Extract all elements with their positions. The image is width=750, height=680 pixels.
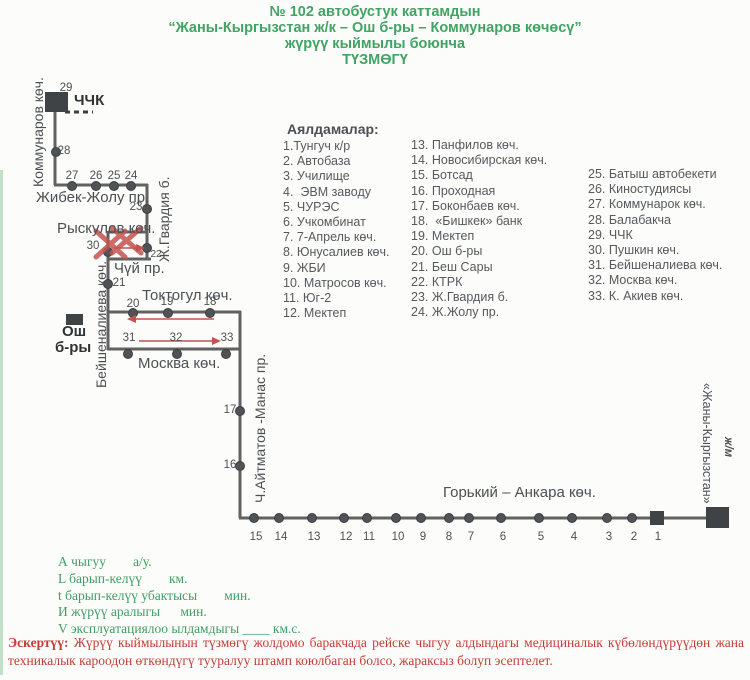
stop-list-item: 30. Пушкин көч.	[588, 243, 722, 258]
stop-list-item: 17. Боконбаев көч.	[411, 199, 547, 214]
stop-number-6: 6	[500, 531, 506, 543]
stop-number-27: 27	[66, 170, 79, 182]
stop-list-item: 14. Новосибирская көч.	[411, 153, 547, 168]
legend-line: И жүрүү аралыгы мин.	[58, 604, 301, 621]
stop-number-10: 10	[392, 531, 405, 543]
stop-list-item: 7. 7-Апрель көч.	[283, 230, 390, 245]
stop-list-item: 23. Ж.Гвардия б.	[411, 290, 547, 305]
street-label-gvardiya: Ж.Гвардия б.	[156, 176, 172, 262]
terminal-label-zhm: ж/м	[722, 437, 734, 457]
warning-note-label: Эскертүү:	[8, 635, 69, 650]
stop-list-item: 5. ЧУРЭС	[283, 200, 390, 215]
street-label-toktogul: Токтогул көч.	[142, 287, 233, 304]
terminal-square-zhany-kyrgyzstan	[706, 507, 729, 528]
street-label-chuy: Чүй пр.	[114, 260, 165, 277]
stop-number-23: 23	[130, 201, 143, 213]
stop-number-5: 5	[538, 531, 544, 543]
stop-number-28: 28	[58, 145, 71, 157]
stop-list-item: 33. К. Акиев көч.	[588, 289, 722, 304]
terminal-square-chchk	[45, 92, 68, 112]
terminal-label-chchk: ЧЧК	[74, 92, 104, 109]
stop-number-14: 14	[275, 531, 288, 543]
street-label-kommunarov: Коммунаров көч.	[30, 77, 46, 187]
stop-list-item: 2. Автобаза	[283, 154, 390, 169]
stop-list-item: 8. Юнусалиев көч.	[283, 245, 390, 260]
stop-number-7: 7	[468, 531, 474, 543]
stop-number-29: 29	[60, 82, 73, 94]
stop-list-item: 10. Матросов көч.	[283, 276, 390, 291]
legend-line: L барып-келүү км.	[58, 571, 301, 588]
route-scheme-page: № 102 автобустук каттамдын “Жаны-Кыргызс…	[0, 0, 750, 680]
street-label-moskva: Москва көч.	[138, 355, 220, 372]
terminal-label-zhany-kyrgyzstan: «Жаны-Кыргызстан»	[700, 383, 714, 504]
stop-list-item: 3. Училище	[283, 169, 390, 184]
stop-list-item: 18. «Бишкек» банк	[411, 214, 547, 229]
legend: А чыгуу а/у.L барып-келүү км.t барып-кел…	[58, 554, 301, 638]
stop-number-13: 13	[308, 531, 321, 543]
street-label-aytmatov-manas: Ч.Айтматов -Манас пр.	[252, 354, 268, 503]
stop-list-item: 25. Батыш автобекети	[588, 167, 722, 182]
stop-list-item: 28. Балабакча	[588, 213, 722, 228]
stop-number-24: 24	[125, 170, 138, 182]
stop-number-9: 9	[420, 531, 426, 543]
stop-list-item: 22. КТРК	[411, 275, 547, 290]
stop-number-20: 20	[127, 298, 140, 310]
stop-list-item: 13. Панфилов көч.	[411, 138, 547, 153]
stop-list-item: 9. ЖБИ	[283, 261, 390, 276]
stops-list-column-1: 1.Тунгуч к/р2. Автобаза3. Училище4. ЭВМ …	[283, 139, 390, 321]
stop-list-item: 31. Бейшеналиева көч.	[588, 258, 722, 273]
street-label-ryskulov: Рыскулов көч.	[57, 220, 155, 237]
stop-list-item: 11. Юг-2	[283, 291, 390, 306]
warning-note-text: Жүрүү кыймылынын түзмөгү жолдомо баракча…	[8, 635, 744, 668]
stop-list-item: 26. Киностудиясы	[588, 182, 722, 197]
stop-number-18: 18	[204, 296, 217, 308]
stop-number-25: 25	[108, 170, 121, 182]
stop-number-12: 12	[340, 531, 353, 543]
stop-number-1: 1	[655, 531, 661, 543]
stop-list-item: 6. Учкомбинат	[283, 215, 390, 230]
terminal-label-osh-2: б-ры	[55, 339, 91, 356]
stop-number-19: 19	[161, 296, 174, 308]
stop-number-3: 3	[606, 531, 612, 543]
stop-number-2: 2	[631, 531, 637, 543]
stop-number-11: 11	[363, 531, 375, 543]
street-label-beyshenalieva: Бейшеналиева көч.	[93, 261, 109, 388]
stop-list-item: 20. Ош б-ры	[411, 244, 547, 259]
street-label-gorky-ankara: Горький – Анкара көч.	[443, 484, 596, 501]
stops-list-column-2: 13. Панфилов көч.14. Новосибирская көч.1…	[411, 138, 547, 320]
stops-list-header: Аялдамалар:	[287, 121, 379, 137]
stop-number-16: 16	[224, 459, 237, 471]
warning-note: Эскертүү: Жүрүү кыймылынын түзмөгү жолдо…	[8, 634, 744, 670]
stop-number-15: 15	[250, 531, 263, 543]
stops-list-column-3: 25. Батыш автобекети26. Киностудиясы27. …	[588, 167, 722, 304]
stop-list-item: 12. Мектеп	[283, 306, 390, 321]
stop-square-1	[650, 511, 664, 525]
legend-line: t барып-келүү убактысы мин.	[58, 588, 301, 605]
legend-line: А чыгуу а/у.	[58, 554, 301, 571]
stop-list-item: 16. Проходная	[411, 184, 547, 199]
stop-number-30: 30	[87, 240, 100, 252]
stop-list-item: 21. Беш Сары	[411, 260, 547, 275]
stop-list-item: 15. Ботсад	[411, 168, 547, 183]
stop-number-21: 21	[113, 277, 126, 289]
stop-number-4: 4	[571, 531, 577, 543]
stop-list-item: 19. Мектеп	[411, 229, 547, 244]
stop-number-26: 26	[90, 170, 103, 182]
stop-list-item: 32. Москва көч.	[588, 273, 722, 288]
stop-list-item: 1.Тунгуч к/р	[283, 139, 390, 154]
stop-list-item: 29. ЧЧК	[588, 228, 722, 243]
stop-number-33: 33	[221, 332, 234, 344]
stop-list-item: 24. Ж.Жолу пр.	[411, 305, 547, 320]
stop-number-32: 32	[170, 332, 183, 344]
stop-number-17: 17	[224, 404, 237, 416]
stop-number-31: 31	[123, 332, 136, 344]
stop-number-8: 8	[446, 531, 452, 543]
stop-list-item: 27. Коммунарок көч.	[588, 197, 722, 212]
terminal-label-osh: Ош	[62, 323, 86, 340]
stop-list-item: 4. ЭВМ заводу	[283, 185, 390, 200]
